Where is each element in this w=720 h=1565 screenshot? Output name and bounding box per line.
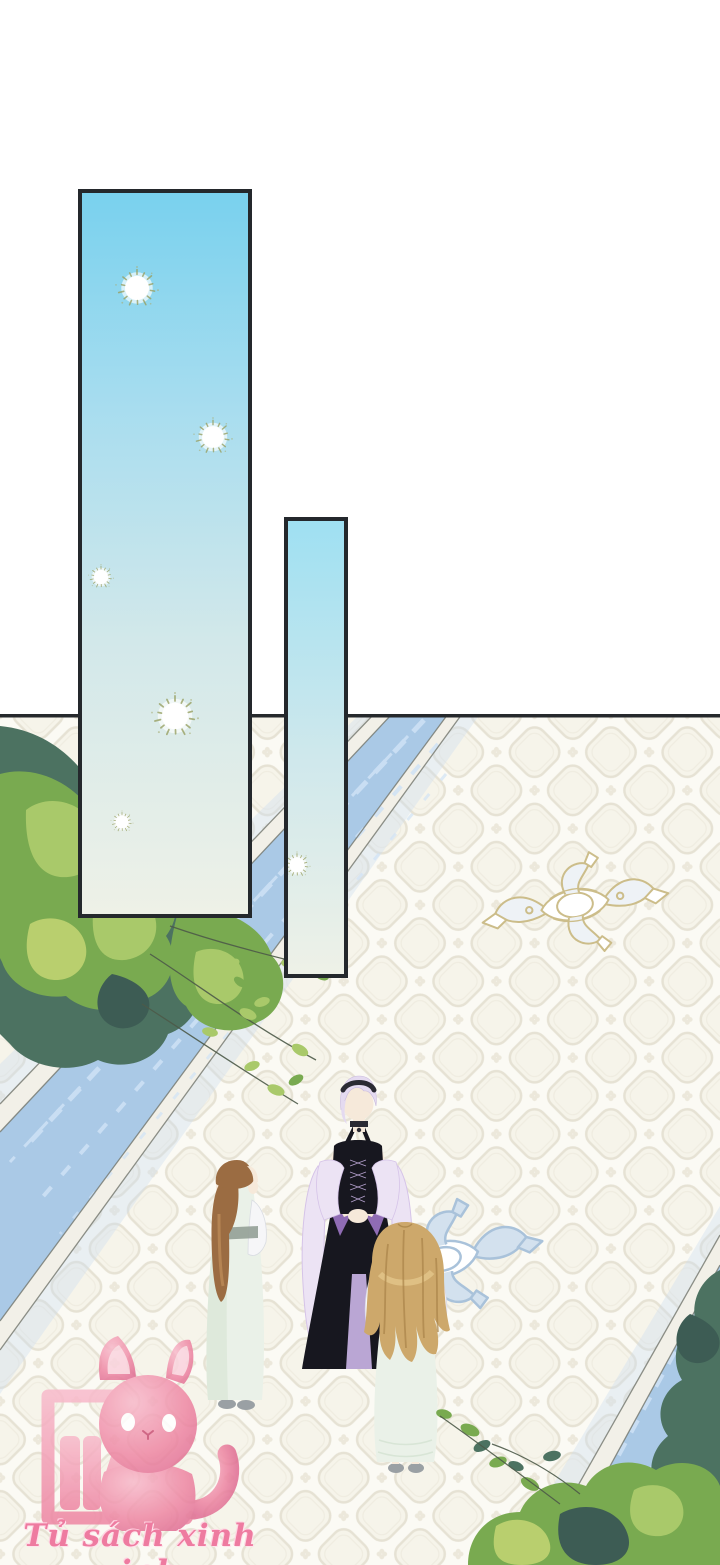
- dandelion-sparkle-icon: [193, 417, 233, 452]
- dandelion-sparkle-icon: [115, 266, 159, 305]
- watermark-text: Tủ sách xinh xinh: [14, 1518, 266, 1565]
- dandelion-sparkle-icon: [88, 564, 114, 587]
- panel-1-sparkles: [82, 193, 248, 914]
- dandelion-sparkle-icon: [111, 811, 134, 831]
- panel-2-sparkles: [288, 521, 344, 974]
- cat-figure: [99, 1336, 230, 1531]
- comic-panel-1: [78, 189, 252, 918]
- comic-panel-2: [284, 517, 348, 978]
- dandelion-sparkle-icon: [288, 851, 311, 875]
- pink-cat-mascot-icon: [36, 1332, 248, 1534]
- comic-page: Tủ sách xinh xinh: [0, 0, 720, 1565]
- dandelion-sparkle-icon: [151, 692, 199, 734]
